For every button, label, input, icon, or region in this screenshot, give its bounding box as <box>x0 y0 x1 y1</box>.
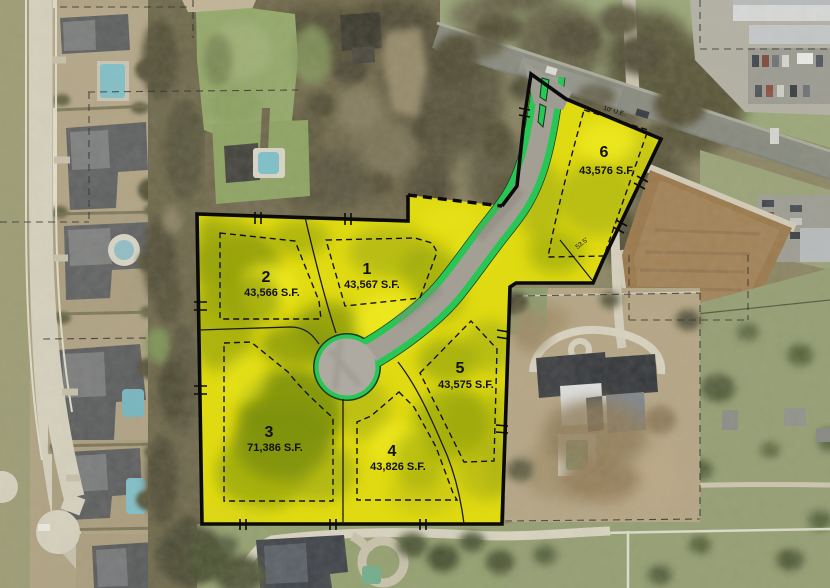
svg-text:2: 2 <box>262 269 271 286</box>
svg-text:43,566 S.F.: 43,566 S.F. <box>244 287 300 299</box>
svg-text:5: 5 <box>456 360 465 377</box>
svg-text:6: 6 <box>600 144 609 161</box>
svg-text:71,386 S.F.: 71,386 S.F. <box>247 442 303 454</box>
svg-text:43,826 S.F.: 43,826 S.F. <box>370 461 426 473</box>
svg-text:43,576 S.F.: 43,576 S.F. <box>579 165 635 177</box>
svg-text:1: 1 <box>363 261 372 278</box>
svg-text:43,575 S.F.: 43,575 S.F. <box>438 379 494 391</box>
svg-text:4: 4 <box>388 443 397 460</box>
svg-text:3: 3 <box>265 424 274 441</box>
svg-text:43,567 S.F.: 43,567 S.F. <box>344 279 400 291</box>
